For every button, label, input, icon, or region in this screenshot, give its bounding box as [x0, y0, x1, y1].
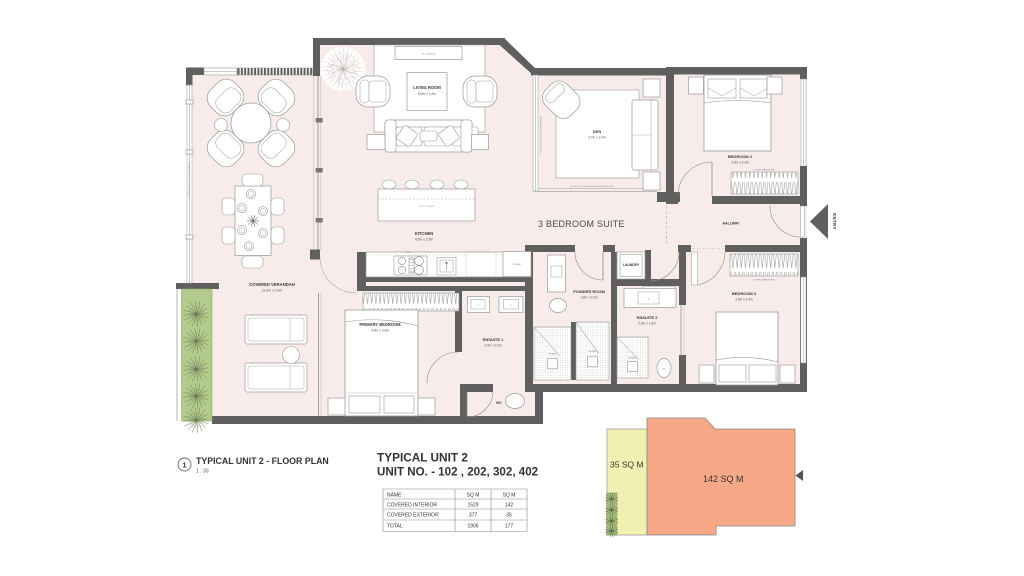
svg-text:ENSUITE 1: ENSUITE 1 — [483, 337, 504, 342]
svg-text:377: 377 — [469, 512, 478, 518]
svg-text:UNIT NO. - 102 , 202, 302, 402: UNIT NO. - 102 , 202, 302, 402 — [377, 466, 538, 479]
svg-text:35: 35 — [506, 512, 512, 518]
svg-text:HALLWAY: HALLWAY — [723, 222, 740, 226]
svg-text:3 BEDROOM SUITE: 3 BEDROOM SUITE — [538, 219, 625, 229]
svg-text:1529: 1529 — [467, 502, 478, 508]
svg-text:142 SQ M: 142 SQ M — [703, 474, 744, 484]
svg-text:177: 177 — [505, 523, 514, 529]
svg-text:DEN: DEN — [593, 129, 602, 134]
svg-text:4.5m x 3.6m: 4.5m x 3.6m — [371, 329, 389, 333]
svg-text:FLOOR TO CEILING GLASS SLIDING: FLOOR TO CEILING GLASS SLIDING DOORS — [570, 185, 615, 188]
svg-text:TYPICAL UNIT 2 - FLOOR PLAN: TYPICAL UNIT 2 - FLOOR PLAN — [196, 456, 329, 466]
svg-text:FRIDGE: FRIDGE — [513, 264, 521, 266]
svg-text:3.4m x 2.0m: 3.4m x 2.0m — [484, 344, 502, 348]
svg-text:1.8m x 2.6m: 1.8m x 2.6m — [580, 296, 598, 300]
svg-text:1: 1 — [182, 461, 186, 470]
svg-text:142: 142 — [505, 502, 514, 508]
svg-text:ENTRY: ENTRY — [832, 213, 837, 230]
svg-text:TV CONSOLE: TV CONSOLE — [421, 54, 436, 56]
svg-text:4.5m x 2.5m: 4.5m x 2.5m — [415, 238, 433, 242]
svg-text:FLOOR TO CEILING GLASS WINDOW: FLOOR TO CEILING GLASS WINDOW — [540, 117, 543, 154]
svg-text:FITTED WARDROBE: FITTED WARDROBE — [753, 279, 775, 282]
svg-text:SQ M: SQ M — [503, 492, 516, 498]
svg-text:LAUNDRY: LAUNDRY — [623, 263, 640, 267]
svg-text:TOP LIT ISLAND: TOP LIT ISLAND — [419, 205, 435, 208]
svg-text:PRIMARY BEDROOM: PRIMARY BEDROOM — [359, 322, 401, 327]
svg-text:ENSUITE 2: ENSUITE 2 — [637, 315, 658, 320]
svg-text:3.7m x 3.4m: 3.7m x 3.4m — [588, 136, 606, 140]
svg-text:COVERED EXTERIOR: COVERED EXTERIOR — [387, 512, 439, 518]
svg-text:1906: 1906 — [467, 523, 478, 529]
svg-text:FLOOR TO CEILING GLASS WINDOW: FLOOR TO CEILING GLASS WINDOW — [188, 162, 191, 199]
svg-text:5.0m x 4.2m: 5.0m x 4.2m — [418, 92, 436, 96]
svg-text:SHOWER: SHOWER — [548, 354, 557, 356]
svg-text:2.6m x 1.8m: 2.6m x 1.8m — [638, 322, 656, 326]
svg-text:KITCHEN: KITCHEN — [415, 231, 434, 236]
svg-text:SHOWER: SHOWER — [628, 357, 637, 359]
svg-text:35 SQ M: 35 SQ M — [610, 460, 644, 470]
svg-text:11.0m x 2.9m: 11.0m x 2.9m — [262, 289, 282, 293]
svg-text:FITTED WARDROBE: FITTED WARDROBE — [753, 169, 775, 172]
svg-text:TYPICAL UNIT 2: TYPICAL UNIT 2 — [377, 451, 468, 465]
svg-text:BEDROOM 2: BEDROOM 2 — [728, 154, 753, 159]
svg-text:WC: WC — [662, 369, 666, 371]
svg-text:SHOWER: SHOWER — [588, 351, 597, 353]
svg-text:POWDER ROOM: POWDER ROOM — [573, 289, 605, 294]
svg-text:HOB: HOB — [406, 252, 411, 254]
svg-text:LIVING ROOM: LIVING ROOM — [413, 85, 441, 90]
svg-text:1 : 30: 1 : 30 — [196, 469, 209, 475]
svg-text:BEDROOM 3: BEDROOM 3 — [732, 291, 757, 296]
svg-text:COVERED VERANDAH: COVERED VERANDAH — [249, 282, 295, 287]
svg-text:NAME: NAME — [387, 492, 402, 498]
svg-text:WC: WC — [496, 401, 502, 405]
svg-text:3.6m x 3.4m: 3.6m x 3.4m — [735, 298, 753, 302]
svg-text:TOTAL: TOTAL — [387, 523, 403, 529]
svg-text:COVERED INTERIOR: COVERED INTERIOR — [387, 502, 437, 508]
svg-text:SQ M: SQ M — [467, 492, 480, 498]
svg-text:3.6m x 3.3m: 3.6m x 3.3m — [731, 161, 749, 165]
